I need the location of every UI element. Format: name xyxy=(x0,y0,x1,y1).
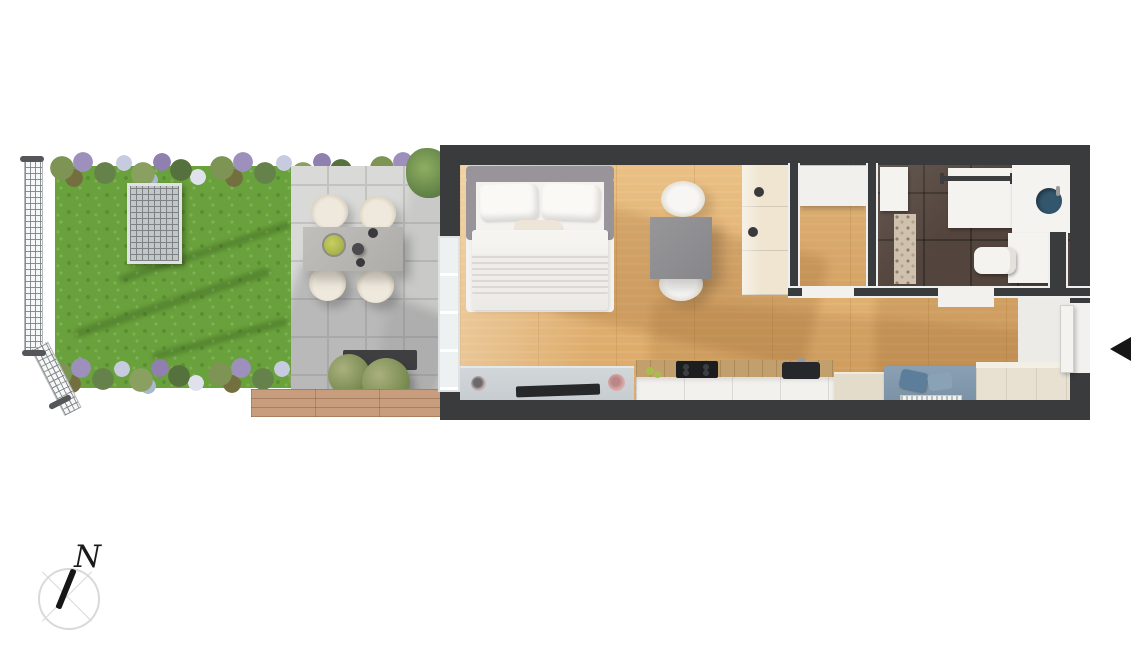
drain-grate xyxy=(127,183,182,264)
wall-left-lower xyxy=(440,390,460,420)
dining-table xyxy=(650,217,712,279)
tall-kitchen-cabinets xyxy=(742,165,790,295)
cabinet-handle xyxy=(748,227,758,237)
partition-storage-right xyxy=(866,163,878,298)
outdoor-chair xyxy=(309,266,346,301)
kitchen-cabinet-fronts xyxy=(636,377,834,402)
outdoor-dining-table xyxy=(303,227,403,271)
glass-terrace-door xyxy=(438,236,460,392)
bed-pillow xyxy=(541,183,600,221)
cabinet-handle xyxy=(754,187,764,197)
towel-bar xyxy=(940,176,1014,181)
wall-bottom xyxy=(440,400,1090,420)
bed-throw-blanket xyxy=(472,254,608,294)
fence-post xyxy=(22,350,46,356)
compass-icon: N xyxy=(30,540,120,650)
partition-storage-left xyxy=(788,163,800,298)
compass-north-label: N xyxy=(74,542,101,573)
storage-room-floor-tint xyxy=(800,206,866,288)
wall-top xyxy=(440,145,1090,165)
towel-bar-bracket xyxy=(940,173,944,184)
washer-cabinet xyxy=(880,167,908,211)
bathroom-threshold xyxy=(938,298,994,307)
mesh-fence-upper xyxy=(24,158,43,354)
outdoor-chair xyxy=(311,194,348,229)
entry-door xyxy=(1060,305,1074,373)
bathroom-wall-stub xyxy=(1048,232,1068,288)
toilet xyxy=(974,247,1016,274)
wall-right-lower xyxy=(1070,373,1090,420)
wall-left-upper xyxy=(440,145,460,241)
fruit-bowl xyxy=(322,233,346,257)
floorplan-render: N xyxy=(0,0,1136,663)
bed-headboard xyxy=(466,166,614,182)
outdoor-chair xyxy=(357,268,394,303)
kettle xyxy=(352,243,364,255)
cooktop xyxy=(676,361,718,378)
kitchen-faucet xyxy=(797,358,805,362)
storage-door-opening xyxy=(802,286,854,298)
fruit xyxy=(654,371,661,378)
sofa-pillow xyxy=(927,371,953,391)
bed-pillow xyxy=(479,183,538,221)
kitchen-sink xyxy=(782,362,820,379)
entrance-arrow-icon xyxy=(1110,337,1131,361)
entry-closet xyxy=(976,362,1070,402)
cup xyxy=(368,228,378,238)
basin-faucet xyxy=(1056,186,1060,196)
shower-tray xyxy=(894,214,916,284)
fence-post xyxy=(20,156,44,162)
speaker xyxy=(471,376,486,391)
wood-deck xyxy=(251,389,440,417)
double-bed xyxy=(466,166,614,312)
outdoor-chair xyxy=(359,196,396,231)
storage-room-shelf xyxy=(800,166,866,206)
wall-right-upper xyxy=(1070,145,1090,305)
pink-plant-pot xyxy=(608,374,625,391)
dining-chair xyxy=(661,181,705,217)
cup xyxy=(356,258,365,267)
kitchen-end-cabinet xyxy=(834,372,884,402)
fruit xyxy=(646,367,654,375)
bathroom-door-opening xyxy=(938,286,994,298)
